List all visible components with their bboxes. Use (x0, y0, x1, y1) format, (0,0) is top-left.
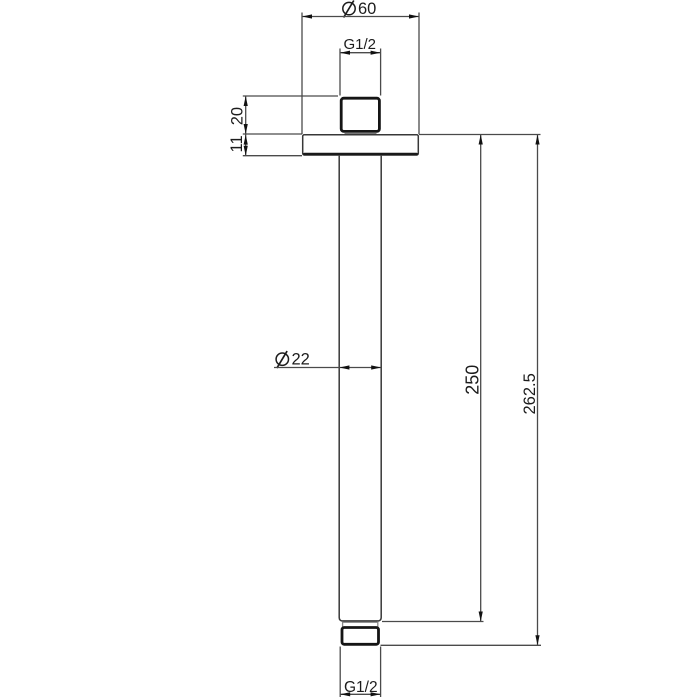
svg-text:60: 60 (358, 0, 376, 18)
svg-text:20: 20 (229, 107, 247, 125)
svg-text:250: 250 (463, 365, 483, 395)
svg-text:11: 11 (228, 135, 246, 152)
svg-text:262.5: 262.5 (521, 373, 539, 414)
svg-text:22: 22 (292, 351, 310, 369)
svg-text:G1/2: G1/2 (344, 36, 377, 53)
